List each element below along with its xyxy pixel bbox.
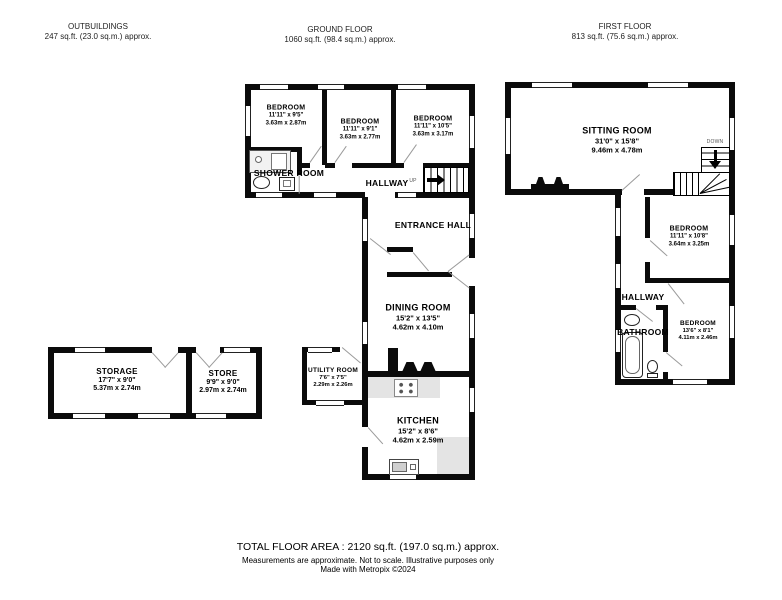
dining-room-label: DINING ROOM 15'2" x 13'5" 4.62m x 4.10m	[385, 303, 450, 332]
gf-hallway-label: HALLWAY	[366, 178, 409, 188]
outbuildings-header: OUTBUILDINGS 247 sq.ft. (23.0 sq.m.) app…	[45, 22, 152, 43]
shower-room-label: SHOWER ROOM	[254, 168, 324, 178]
room-name: UTILITY ROOM	[308, 367, 358, 375]
up-arrow-head	[437, 174, 445, 186]
section-title: GROUND FLOOR	[284, 25, 395, 35]
sitting-room-label: SITTING ROOM 31'0" x 15'8" 9.46m x 4.78m	[582, 126, 652, 155]
gf-bedroom1-label: BEDROOM 11'11" x 9'5" 3.63m x 2.87m	[266, 105, 307, 128]
room-dims-metric: 4.62m x 4.10m	[385, 322, 450, 331]
stove-icon	[420, 362, 436, 372]
door	[309, 146, 322, 163]
window	[469, 314, 475, 338]
staircase-treads	[674, 173, 700, 195]
wall	[48, 347, 54, 419]
window	[256, 192, 282, 198]
floorplan-canvas: OUTBUILDINGS 247 sq.ft. (23.0 sq.m.) app…	[0, 0, 782, 600]
room-dims-metric: 9.46m x 4.78m	[582, 145, 652, 154]
hob-icon	[394, 379, 418, 397]
stairs-direction-label: UP	[409, 178, 416, 184]
entrance-hall-label: ENTRANCE HALL	[395, 220, 471, 230]
room-name: SITTING ROOM	[582, 126, 652, 137]
door	[666, 352, 683, 367]
stove-icon	[402, 362, 418, 372]
fireplace-icon	[536, 177, 545, 184]
room-name: DINING ROOM	[385, 303, 450, 314]
room-dims-metric: 3.64m x 3.25m	[669, 241, 710, 248]
room-dims-imperial: 15'2" x 13'5"	[385, 313, 450, 322]
wall	[302, 347, 307, 405]
window	[316, 400, 344, 406]
window	[308, 347, 332, 353]
door-opening	[622, 189, 644, 195]
room-dims-metric: 3.63m x 2.87m	[266, 120, 307, 127]
ff-hallway-label: HALLWAY	[622, 292, 665, 302]
room-dims-metric: 4.62m x 2.59m	[393, 435, 444, 444]
bathroom-label: BATHROOM	[617, 327, 669, 337]
stairs-direction-label: DOWN	[707, 139, 724, 145]
wall	[645, 278, 729, 283]
gf-bedroom3-label: BEDROOM 11'11" x 10'5" 3.63m x 3.17m	[413, 116, 454, 139]
wall	[325, 163, 335, 168]
room-dims-metric: 3.63m x 2.77m	[340, 134, 381, 141]
door	[403, 144, 417, 163]
shower-control-icon	[255, 156, 262, 163]
wall	[352, 163, 404, 168]
sink-basin-icon	[283, 180, 291, 187]
window	[398, 84, 426, 90]
door	[667, 283, 684, 304]
window	[469, 116, 475, 148]
wall	[245, 84, 251, 198]
fireplace-icon	[531, 184, 569, 190]
footer: TOTAL FLOOR AREA : 2120 sq.ft. (197.0 sq…	[168, 541, 568, 574]
room-name: BEDROOM	[669, 226, 710, 234]
ff-bedroom2-label: BEDROOM 13'6" x 8'1" 4.11m x 2.46m	[679, 320, 718, 342]
wall	[645, 197, 650, 238]
front-door	[448, 255, 470, 273]
window	[245, 106, 251, 136]
room-name: KITCHEN	[393, 416, 444, 427]
gf-bedroom2-label: BEDROOM 11'11" x 9'1" 3.63m x 2.77m	[340, 119, 381, 142]
section-title: FIRST FLOOR	[572, 22, 679, 32]
door-opening	[362, 427, 368, 447]
wall	[256, 347, 262, 419]
wall	[387, 272, 452, 277]
door	[208, 352, 222, 368]
door	[412, 252, 428, 271]
door	[298, 176, 299, 194]
wall	[391, 90, 396, 165]
wall	[186, 347, 192, 419]
window	[469, 388, 475, 412]
section-area: 1060 sq.ft. (98.4 sq.m.) approx.	[284, 35, 395, 45]
door-opening	[152, 347, 178, 353]
window	[729, 306, 735, 338]
room-name: BEDROOM	[413, 116, 454, 124]
room-dims-imperial: 31'0" x 15'8"	[582, 136, 652, 145]
front-door	[448, 271, 470, 289]
first-floor-header: FIRST FLOOR 813 sq.ft. (75.6 sq.m.) appr…	[572, 22, 679, 43]
wall	[322, 90, 327, 165]
window	[648, 82, 688, 88]
section-title: OUTBUILDINGS	[45, 22, 152, 32]
window	[532, 82, 572, 88]
room-name: STORAGE	[93, 367, 140, 377]
window	[729, 215, 735, 245]
storage-label: STORAGE 17'7" x 9'0" 5.37m x 2.74m	[93, 367, 140, 393]
window	[673, 379, 707, 385]
room-dims-imperial: 13'6" x 8'1"	[679, 328, 718, 335]
front-door-opening	[469, 258, 475, 286]
room-name: BEDROOM	[679, 320, 718, 328]
up-arrow	[427, 178, 437, 182]
door	[367, 427, 383, 444]
door-opening	[196, 347, 220, 353]
room-dims-metric: 2.97m x 2.74m	[199, 387, 246, 395]
window	[398, 192, 416, 198]
toilet-icon	[647, 360, 658, 373]
section-area: 813 sq.ft. (75.6 sq.m.) approx.	[572, 32, 679, 42]
wall	[615, 305, 636, 310]
window	[138, 413, 170, 419]
wall	[663, 372, 668, 385]
section-area: 247 sq.ft. (23.0 sq.m.) approx.	[45, 32, 152, 42]
room-dims-metric: 5.37m x 2.74m	[93, 385, 140, 393]
window	[196, 413, 226, 419]
door	[650, 240, 668, 256]
store-label: STORE 9'9" x 9'0" 2.97m x 2.74m	[199, 369, 246, 395]
sink-icon	[624, 314, 640, 326]
room-dims-imperial: 9'9" x 9'0"	[199, 378, 246, 386]
window	[318, 84, 344, 90]
door	[334, 146, 347, 163]
window	[75, 347, 105, 353]
door	[342, 347, 361, 363]
toilet-cistern-icon	[647, 373, 658, 378]
chimney-breast	[388, 348, 398, 371]
window	[729, 118, 735, 150]
down-arrow-head	[709, 161, 721, 169]
window	[362, 219, 368, 241]
window	[314, 192, 336, 198]
window	[260, 84, 288, 90]
room-dims-imperial: 11'11" x 10'8"	[669, 234, 710, 241]
room-dims-metric: 3.63m x 3.17m	[413, 131, 454, 138]
ground-floor-header: GROUND FLOOR 1060 sq.ft. (98.4 sq.m.) ap…	[284, 25, 395, 46]
room-dims-imperial: 11'11" x 10'5"	[413, 124, 454, 131]
credit: Made with Metropix ©2024	[168, 565, 568, 574]
room-dims-metric: 2.29m x 2.26m	[308, 382, 358, 389]
window	[362, 322, 368, 344]
wall	[387, 247, 413, 252]
room-dims-imperial: 7'6" x 7'5"	[308, 375, 358, 382]
drainer-icon	[410, 464, 416, 470]
door	[164, 352, 178, 368]
room-dims-metric: 4.11m x 2.46m	[679, 335, 718, 342]
ff-bedroom1-label: BEDROOM 11'11" x 10'8" 3.64m x 3.25m	[669, 226, 710, 249]
room-name: BEDROOM	[340, 119, 381, 127]
utility-room-label: UTILITY ROOM 7'6" x 7'5" 2.29m x 2.26m	[308, 367, 358, 389]
room-dims-imperial: 11'11" x 9'5"	[266, 113, 307, 120]
total-floor-area: TOTAL FLOOR AREA : 2120 sq.ft. (197.0 sq…	[168, 541, 568, 553]
disclaimer: Measurements are approximate. Not to sca…	[168, 556, 568, 565]
bathtub-inner-icon	[625, 336, 640, 374]
window	[505, 118, 511, 154]
room-dims-imperial: 17'7" x 9'0"	[93, 376, 140, 384]
down-arrow	[714, 150, 718, 161]
kitchen-label: KITCHEN 15'2" x 8'6" 4.62m x 2.59m	[393, 416, 444, 445]
window	[615, 264, 621, 288]
window	[224, 347, 250, 353]
room-dims-imperial: 15'2" x 8'6"	[393, 426, 444, 435]
room-name: BEDROOM	[266, 105, 307, 113]
fireplace-icon	[554, 177, 563, 184]
window	[615, 208, 621, 236]
room-name: STORE	[199, 369, 246, 379]
room-dims-imperial: 11'11" x 9'1"	[340, 127, 381, 134]
sink-basin-icon	[392, 462, 407, 472]
window	[73, 413, 105, 419]
